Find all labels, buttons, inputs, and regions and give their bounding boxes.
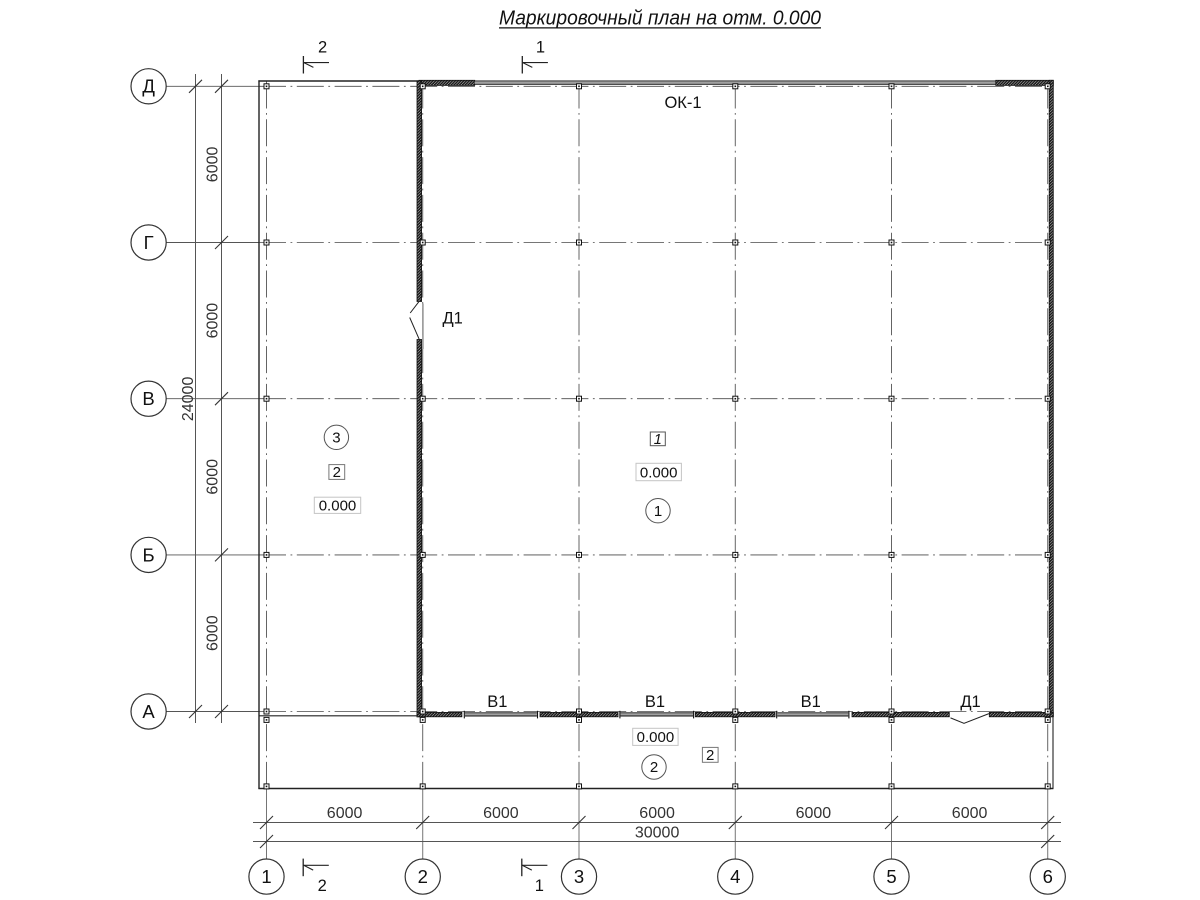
- svg-text:6: 6: [1043, 866, 1053, 887]
- svg-text:А: А: [142, 701, 155, 722]
- svg-text:5: 5: [886, 866, 896, 887]
- svg-text:Д: Д: [142, 76, 155, 97]
- svg-text:ОК-1: ОК-1: [664, 94, 701, 112]
- svg-text:3: 3: [332, 430, 340, 447]
- svg-text:1: 1: [261, 866, 271, 887]
- svg-text:2: 2: [706, 747, 714, 764]
- svg-text:30000: 30000: [635, 824, 680, 841]
- svg-text:6000: 6000: [205, 303, 222, 339]
- svg-text:6000: 6000: [639, 805, 675, 822]
- svg-text:6000: 6000: [483, 805, 519, 822]
- svg-text:6000: 6000: [205, 459, 222, 495]
- svg-text:Маркировочный план на отм. 0.0: Маркировочный план на отм. 0.000: [499, 7, 822, 30]
- svg-text:3: 3: [574, 866, 584, 887]
- svg-text:4: 4: [730, 866, 740, 887]
- svg-text:6000: 6000: [796, 805, 832, 822]
- svg-text:Д1: Д1: [443, 309, 463, 327]
- svg-text:0.000: 0.000: [319, 497, 357, 514]
- svg-text:В: В: [142, 388, 154, 409]
- svg-text:1: 1: [654, 432, 662, 448]
- svg-text:2: 2: [318, 877, 327, 895]
- svg-text:В1: В1: [645, 693, 665, 711]
- svg-text:2: 2: [318, 38, 327, 56]
- svg-text:2: 2: [418, 866, 428, 887]
- svg-text:Д1: Д1: [960, 693, 980, 711]
- svg-text:2: 2: [650, 759, 658, 776]
- svg-text:В1: В1: [801, 693, 821, 711]
- svg-text:6000: 6000: [205, 147, 222, 183]
- svg-text:6000: 6000: [327, 805, 363, 822]
- svg-text:24000: 24000: [180, 377, 197, 422]
- svg-text:В1: В1: [487, 693, 507, 711]
- svg-text:0.000: 0.000: [637, 729, 675, 746]
- svg-text:0.000: 0.000: [640, 464, 678, 481]
- svg-text:6000: 6000: [205, 615, 222, 651]
- svg-text:1: 1: [535, 877, 544, 895]
- svg-text:1: 1: [536, 38, 545, 56]
- svg-text:Б: Б: [143, 544, 155, 565]
- svg-text:Г: Г: [144, 232, 154, 253]
- svg-text:1: 1: [654, 503, 662, 520]
- svg-text:6000: 6000: [952, 805, 988, 822]
- svg-text:2: 2: [333, 464, 341, 481]
